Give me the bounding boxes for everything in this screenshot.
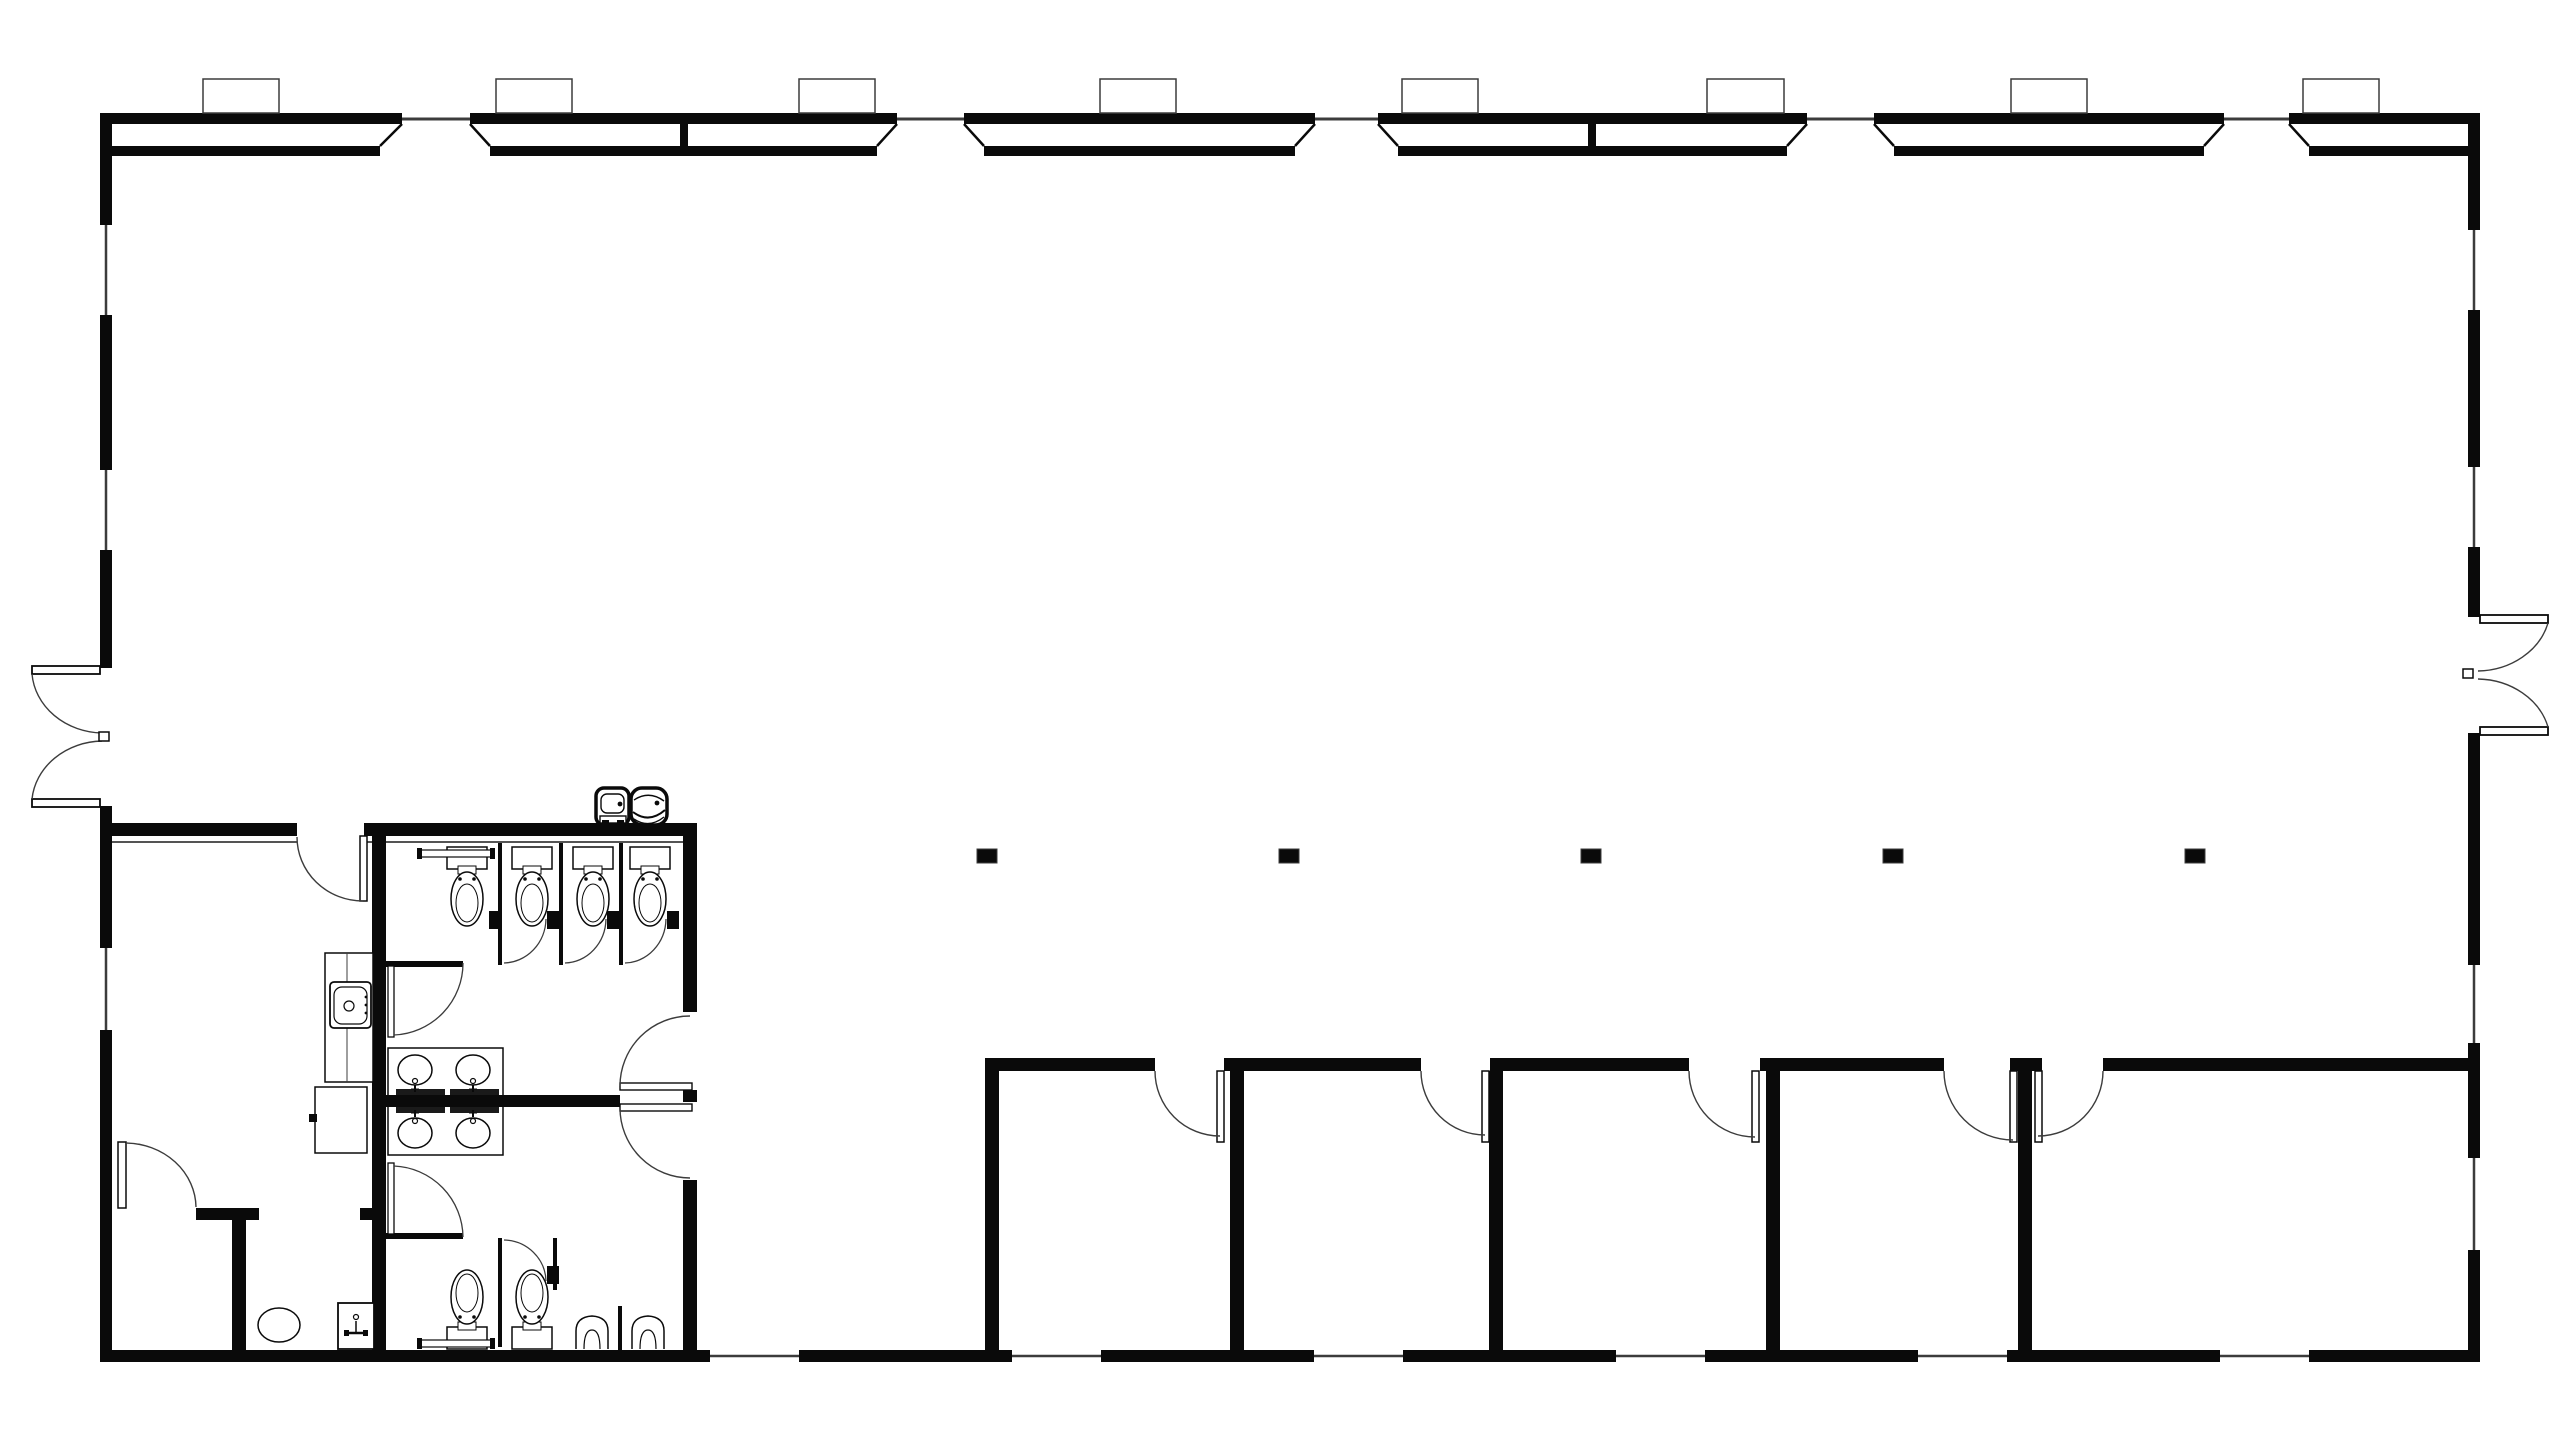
window-sill [2303, 79, 2379, 113]
exterior-wall-right [2468, 733, 2480, 965]
entry-door-swing-arc [32, 674, 102, 733]
stall-partition [498, 1238, 502, 1347]
window-sill [1100, 79, 1176, 113]
facade-miter [2289, 124, 2309, 146]
waste-drum [258, 1308, 300, 1342]
urinal [632, 1316, 664, 1349]
interior-wall [372, 823, 386, 1350]
exterior-wall-bottom [799, 1350, 1012, 1362]
grab-bar-end [417, 1338, 422, 1349]
stall-partition [559, 843, 563, 965]
interior-wall [360, 1208, 386, 1220]
urinal-screen [618, 1306, 622, 1350]
exterior-wall-left [100, 550, 112, 668]
entry-door-leaf [32, 666, 100, 674]
stall-door-arc [394, 963, 463, 1035]
facade-miter [380, 124, 402, 146]
facade-panel [1894, 146, 2204, 156]
exterior-wall-right [2468, 1250, 2480, 1362]
facade-mullion [1588, 124, 1596, 146]
kitchen-faucet [365, 996, 368, 999]
interior-wall [1489, 1071, 1503, 1350]
interior-wall [196, 1208, 259, 1220]
grab-bar-end [417, 848, 422, 859]
interior-wall [985, 1058, 1155, 1071]
door-leaf [1482, 1071, 1489, 1142]
entry-door-meeting-stile [99, 732, 109, 741]
door-leaf [360, 836, 367, 901]
facade-panel [1398, 146, 1787, 156]
facade-panel [470, 113, 897, 124]
facade-miter [1378, 124, 1398, 146]
sink-basin [456, 1118, 490, 1148]
kitchen-faucet [365, 1004, 368, 1007]
toilet-hinge [537, 877, 541, 881]
window-sill [1707, 79, 1784, 113]
door-swing-arc [2038, 1071, 2103, 1136]
stall-latch [607, 911, 619, 929]
faucet-deck [396, 1089, 445, 1095]
mop-sink-handle [344, 1330, 349, 1336]
grab-bar-end [490, 848, 495, 859]
facade-panel [964, 113, 1315, 124]
exterior-wall-right [2468, 310, 2480, 467]
toilet-hinge [641, 877, 645, 881]
faucet-deck [450, 1107, 499, 1113]
stall-door-leaf [388, 1163, 394, 1234]
window-sill [496, 79, 572, 113]
sink-basin [456, 1055, 490, 1085]
facade-panel [100, 113, 402, 124]
entry-door-leaf [2480, 615, 2548, 623]
entry-door-meeting-stile [2463, 669, 2473, 678]
toilet-hinge [523, 877, 527, 881]
facade-panel [2289, 113, 2480, 124]
exterior-wall-bottom [1101, 1350, 1314, 1362]
door-jamb [683, 1090, 697, 1102]
interior-wall [386, 1095, 620, 1107]
grab-bar-end [490, 1338, 495, 1349]
exterior-wall-bottom [2007, 1350, 2220, 1362]
mop-sink-handle [363, 1330, 368, 1336]
facade-miter [877, 124, 897, 146]
stall-latch [547, 1266, 559, 1284]
door-leaf [2035, 1071, 2042, 1142]
facade-panel [984, 146, 1295, 156]
faucet-deck [450, 1089, 499, 1095]
window-sill [203, 79, 279, 113]
facade-panel [112, 146, 380, 156]
interior-wall [683, 823, 697, 1012]
stall-door-arc [565, 919, 606, 963]
door-swing-arc [620, 1016, 690, 1086]
facade-miter [1787, 124, 1807, 146]
door-leaf [620, 1104, 692, 1111]
interior-wall [112, 823, 297, 836]
water-cooler-spout [655, 801, 660, 806]
entry-door-leaf [2480, 727, 2548, 735]
facade-miter [1874, 124, 1894, 146]
toilet-hinge [598, 877, 602, 881]
grab-bar [420, 1340, 492, 1347]
exterior-wall-right [2468, 1043, 2480, 1158]
exterior-wall-bottom [100, 1350, 710, 1362]
sink-basin [398, 1055, 432, 1085]
water-cooler-spout [618, 802, 623, 807]
structural-column [977, 849, 997, 863]
interior-wall [1490, 1058, 1689, 1071]
facade-miter [2204, 124, 2224, 146]
interior-wall [683, 1180, 697, 1350]
door-swing-arc [1421, 1071, 1485, 1135]
toilet-hinge [458, 1315, 462, 1319]
floor-plan-page [0, 0, 2560, 1434]
toilet-hinge [523, 1315, 527, 1319]
toilet-hinge [655, 877, 659, 881]
entry-door-swing-arc [2478, 679, 2548, 727]
toilet-hinge [472, 1315, 476, 1319]
door-leaf [620, 1083, 692, 1090]
entry-door-leaf [32, 799, 100, 807]
interior-wall [2010, 1058, 2042, 1071]
door-leaf [1217, 1071, 1224, 1142]
interior-wall [2018, 1071, 2032, 1350]
structural-column [2185, 849, 2205, 863]
door-leaf [118, 1142, 126, 1208]
stall-door-leaf [388, 966, 394, 1037]
exterior-wall-bottom [2309, 1350, 2480, 1362]
stall-latch [547, 911, 559, 929]
exterior-wall-bottom [1705, 1350, 1918, 1362]
facade-miter [1295, 124, 1315, 146]
structural-column [1581, 849, 1601, 863]
stall-latch [667, 911, 679, 929]
exterior-wall-right [2468, 547, 2480, 617]
entry-door-swing-arc [2478, 623, 2548, 671]
facade-panel [1874, 113, 2224, 124]
facade-panel [2309, 146, 2468, 156]
door-swing-arc [620, 1108, 690, 1178]
water-cooler-foot [617, 820, 624, 825]
interior-wall [1224, 1058, 1421, 1071]
stall-partition [498, 843, 502, 965]
refrigerator-handle [309, 1114, 317, 1122]
facade-panel [490, 146, 877, 156]
facade-miter [964, 124, 984, 146]
stall-latch [489, 911, 501, 929]
door-swing-arc [297, 837, 363, 901]
interior-wall [1766, 1071, 1780, 1350]
door-swing-arc [1689, 1071, 1755, 1137]
interior-wall [1230, 1071, 1244, 1350]
entry-door-swing-arc [32, 741, 102, 799]
kitchen-faucet [365, 1012, 368, 1015]
stall-door-arc [504, 919, 546, 963]
door-leaf [2010, 1071, 2017, 1142]
exterior-wall-left [100, 1030, 112, 1362]
door-leaf [1752, 1071, 1759, 1142]
exterior-wall-left [100, 113, 112, 225]
floor-plan-drawing [0, 0, 2560, 1434]
toilet-hinge [537, 1315, 541, 1319]
door-swing-arc [1155, 1071, 1220, 1136]
structural-column [1883, 849, 1903, 863]
facade-panel [1378, 113, 1807, 124]
stall-partition [619, 843, 623, 965]
window-sill [799, 79, 875, 113]
structural-column [1279, 849, 1299, 863]
stall-front-wall [386, 1233, 463, 1239]
facade-mullion [680, 124, 688, 146]
urinal [576, 1316, 608, 1349]
water-cooler-foot [602, 820, 609, 825]
facade-miter [470, 124, 490, 146]
sink-basin [398, 1118, 432, 1148]
interior-wall [1760, 1058, 1944, 1071]
stall-door-arc [394, 1166, 463, 1237]
toilet-hinge [472, 877, 476, 881]
toilet-hinge [584, 877, 588, 881]
exterior-wall-right [2468, 113, 2480, 230]
interior-wall [2103, 1058, 2468, 1071]
faucet-deck [396, 1107, 445, 1113]
interior-wall [232, 1220, 246, 1350]
toilet-hinge [458, 877, 462, 881]
exterior-wall-bottom [1403, 1350, 1616, 1362]
stall-front-wall [386, 961, 463, 967]
door-swing-arc [126, 1143, 196, 1207]
exterior-wall-left [100, 315, 112, 470]
window-sill [2011, 79, 2087, 113]
door-swing-arc [1944, 1071, 2013, 1140]
grab-bar [420, 850, 492, 857]
interior-wall [985, 1071, 999, 1350]
exterior-wall-left [100, 806, 112, 948]
window-sill [1402, 79, 1478, 113]
refrigerator [315, 1087, 367, 1153]
